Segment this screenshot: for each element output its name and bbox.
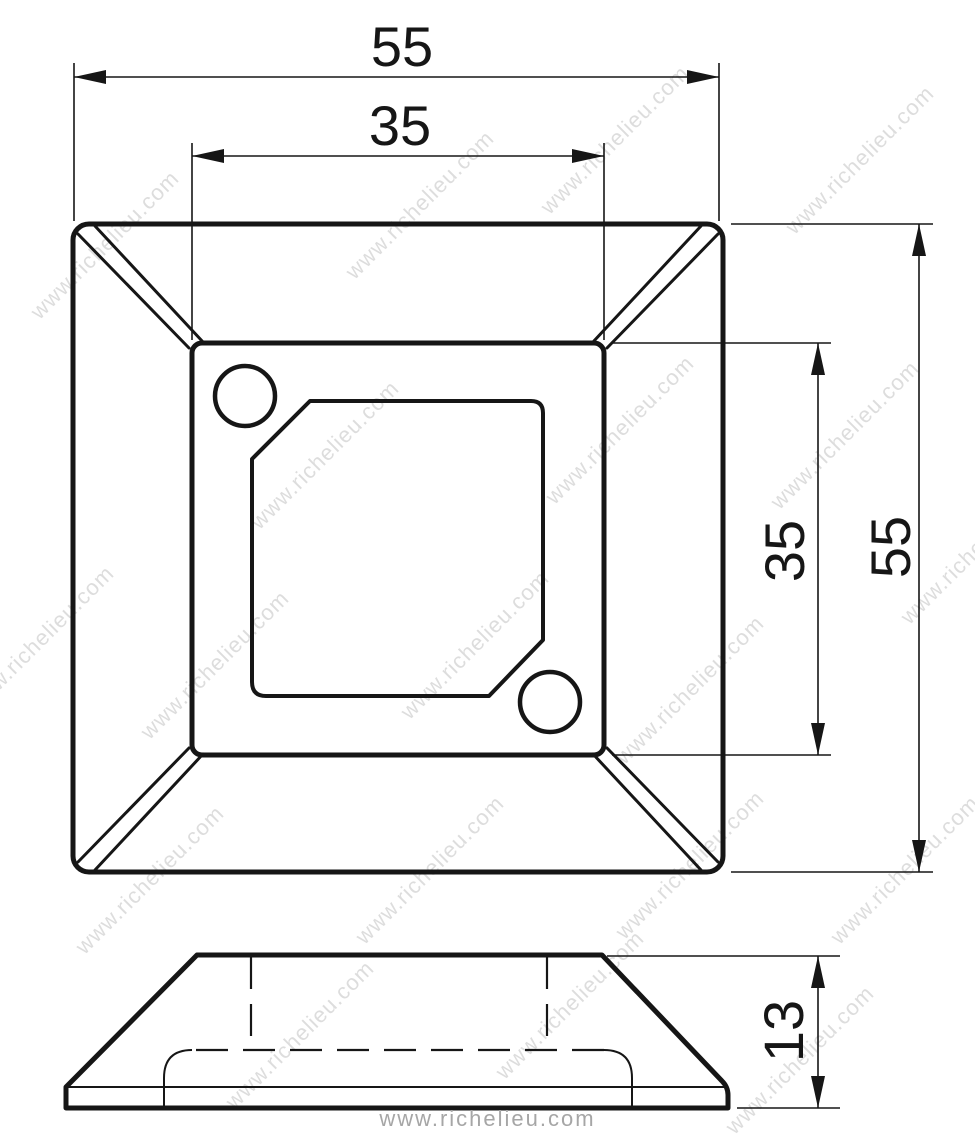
arrowhead-bottom bbox=[811, 1076, 825, 1108]
hole-bottom-right bbox=[520, 672, 580, 732]
side-view bbox=[66, 955, 728, 1108]
dim-label-right-height: 55 bbox=[859, 516, 922, 578]
footer-text: www.richelieu.com bbox=[0, 1106, 975, 1132]
dimension-top-plateau-width: 35 bbox=[192, 94, 604, 340]
drawing-page: www.richelieu.com www.richelieu.com www.… bbox=[0, 0, 975, 1146]
arrowhead-bottom bbox=[811, 723, 825, 755]
bevel-line-top-right-inner bbox=[593, 226, 701, 342]
technical-drawing-canvas: 55 35 55 35 bbox=[0, 0, 975, 1146]
bevel-line-top-left-inner bbox=[95, 226, 203, 342]
bevel-line-bottom-right-outer bbox=[607, 748, 718, 862]
hole-top-left bbox=[215, 366, 275, 426]
arrowhead-bottom bbox=[912, 840, 926, 872]
arrowhead-top bbox=[811, 956, 825, 988]
bevel-line-top-right-outer bbox=[607, 234, 718, 348]
underside-fillet-left bbox=[164, 1050, 192, 1107]
arrowhead-right bbox=[572, 149, 604, 163]
arrowhead-left bbox=[74, 70, 106, 84]
outer-square-outline bbox=[73, 224, 723, 872]
bevel-line-bottom-left-outer bbox=[78, 748, 189, 862]
arrowhead-right bbox=[687, 70, 719, 84]
arrowhead-top bbox=[811, 343, 825, 375]
top-view bbox=[73, 224, 723, 872]
underside-fillet-right bbox=[604, 1050, 632, 1107]
side-view-outline bbox=[66, 955, 728, 1108]
dim-label-top-plateau-width: 35 bbox=[369, 94, 431, 157]
arrowhead-top bbox=[912, 224, 926, 256]
dim-label-top-width: 55 bbox=[371, 15, 433, 78]
arrowhead-left bbox=[192, 149, 224, 163]
bevel-line-bottom-right-inner bbox=[593, 754, 701, 870]
pocket-outline bbox=[252, 401, 543, 696]
dim-label-side-thickness: 13 bbox=[752, 1000, 815, 1062]
bevel-line-bottom-left-inner bbox=[95, 754, 203, 870]
bevel-line-top-left-outer bbox=[78, 234, 189, 348]
dim-label-right-plateau-height: 35 bbox=[753, 520, 816, 582]
